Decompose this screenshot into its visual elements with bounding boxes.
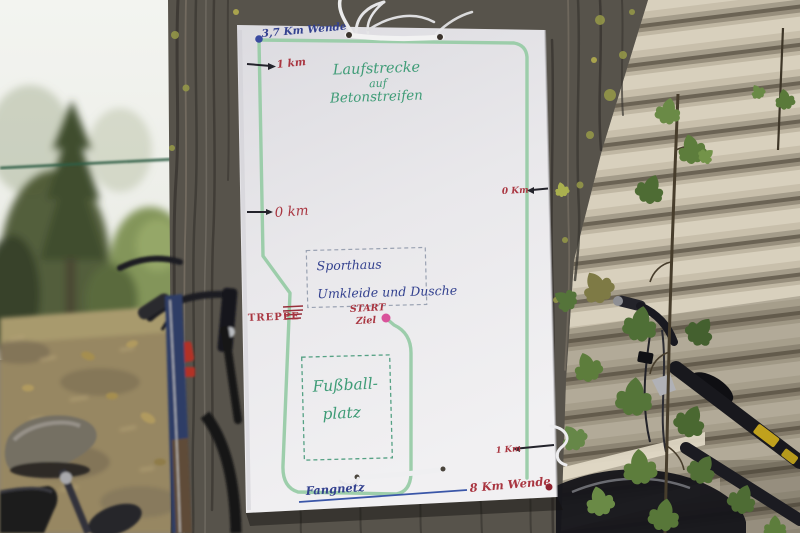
marker-right-0km: 0 Km — [502, 186, 529, 197]
start-label: START — [350, 302, 387, 315]
sign-title-line3: Betonstreifen — [329, 87, 423, 106]
fussballplatz-label-line1: Fußball- — [311, 374, 378, 395]
treppe-label: TREPPE — [248, 311, 300, 324]
ziel-label: Ziel — [355, 315, 377, 327]
sign-title-line1: Laufstrecke — [332, 59, 421, 78]
photo-scene: 3,7 Km Wende 1 km Laufstrecke auf Betons… — [0, 0, 800, 533]
sporthaus-label-line1: Sporthaus — [316, 257, 381, 274]
marker-left-0km: 0 km — [274, 203, 309, 221]
start-finish-dot — [382, 314, 391, 323]
fussballplatz-label-line2: platz — [322, 403, 362, 423]
